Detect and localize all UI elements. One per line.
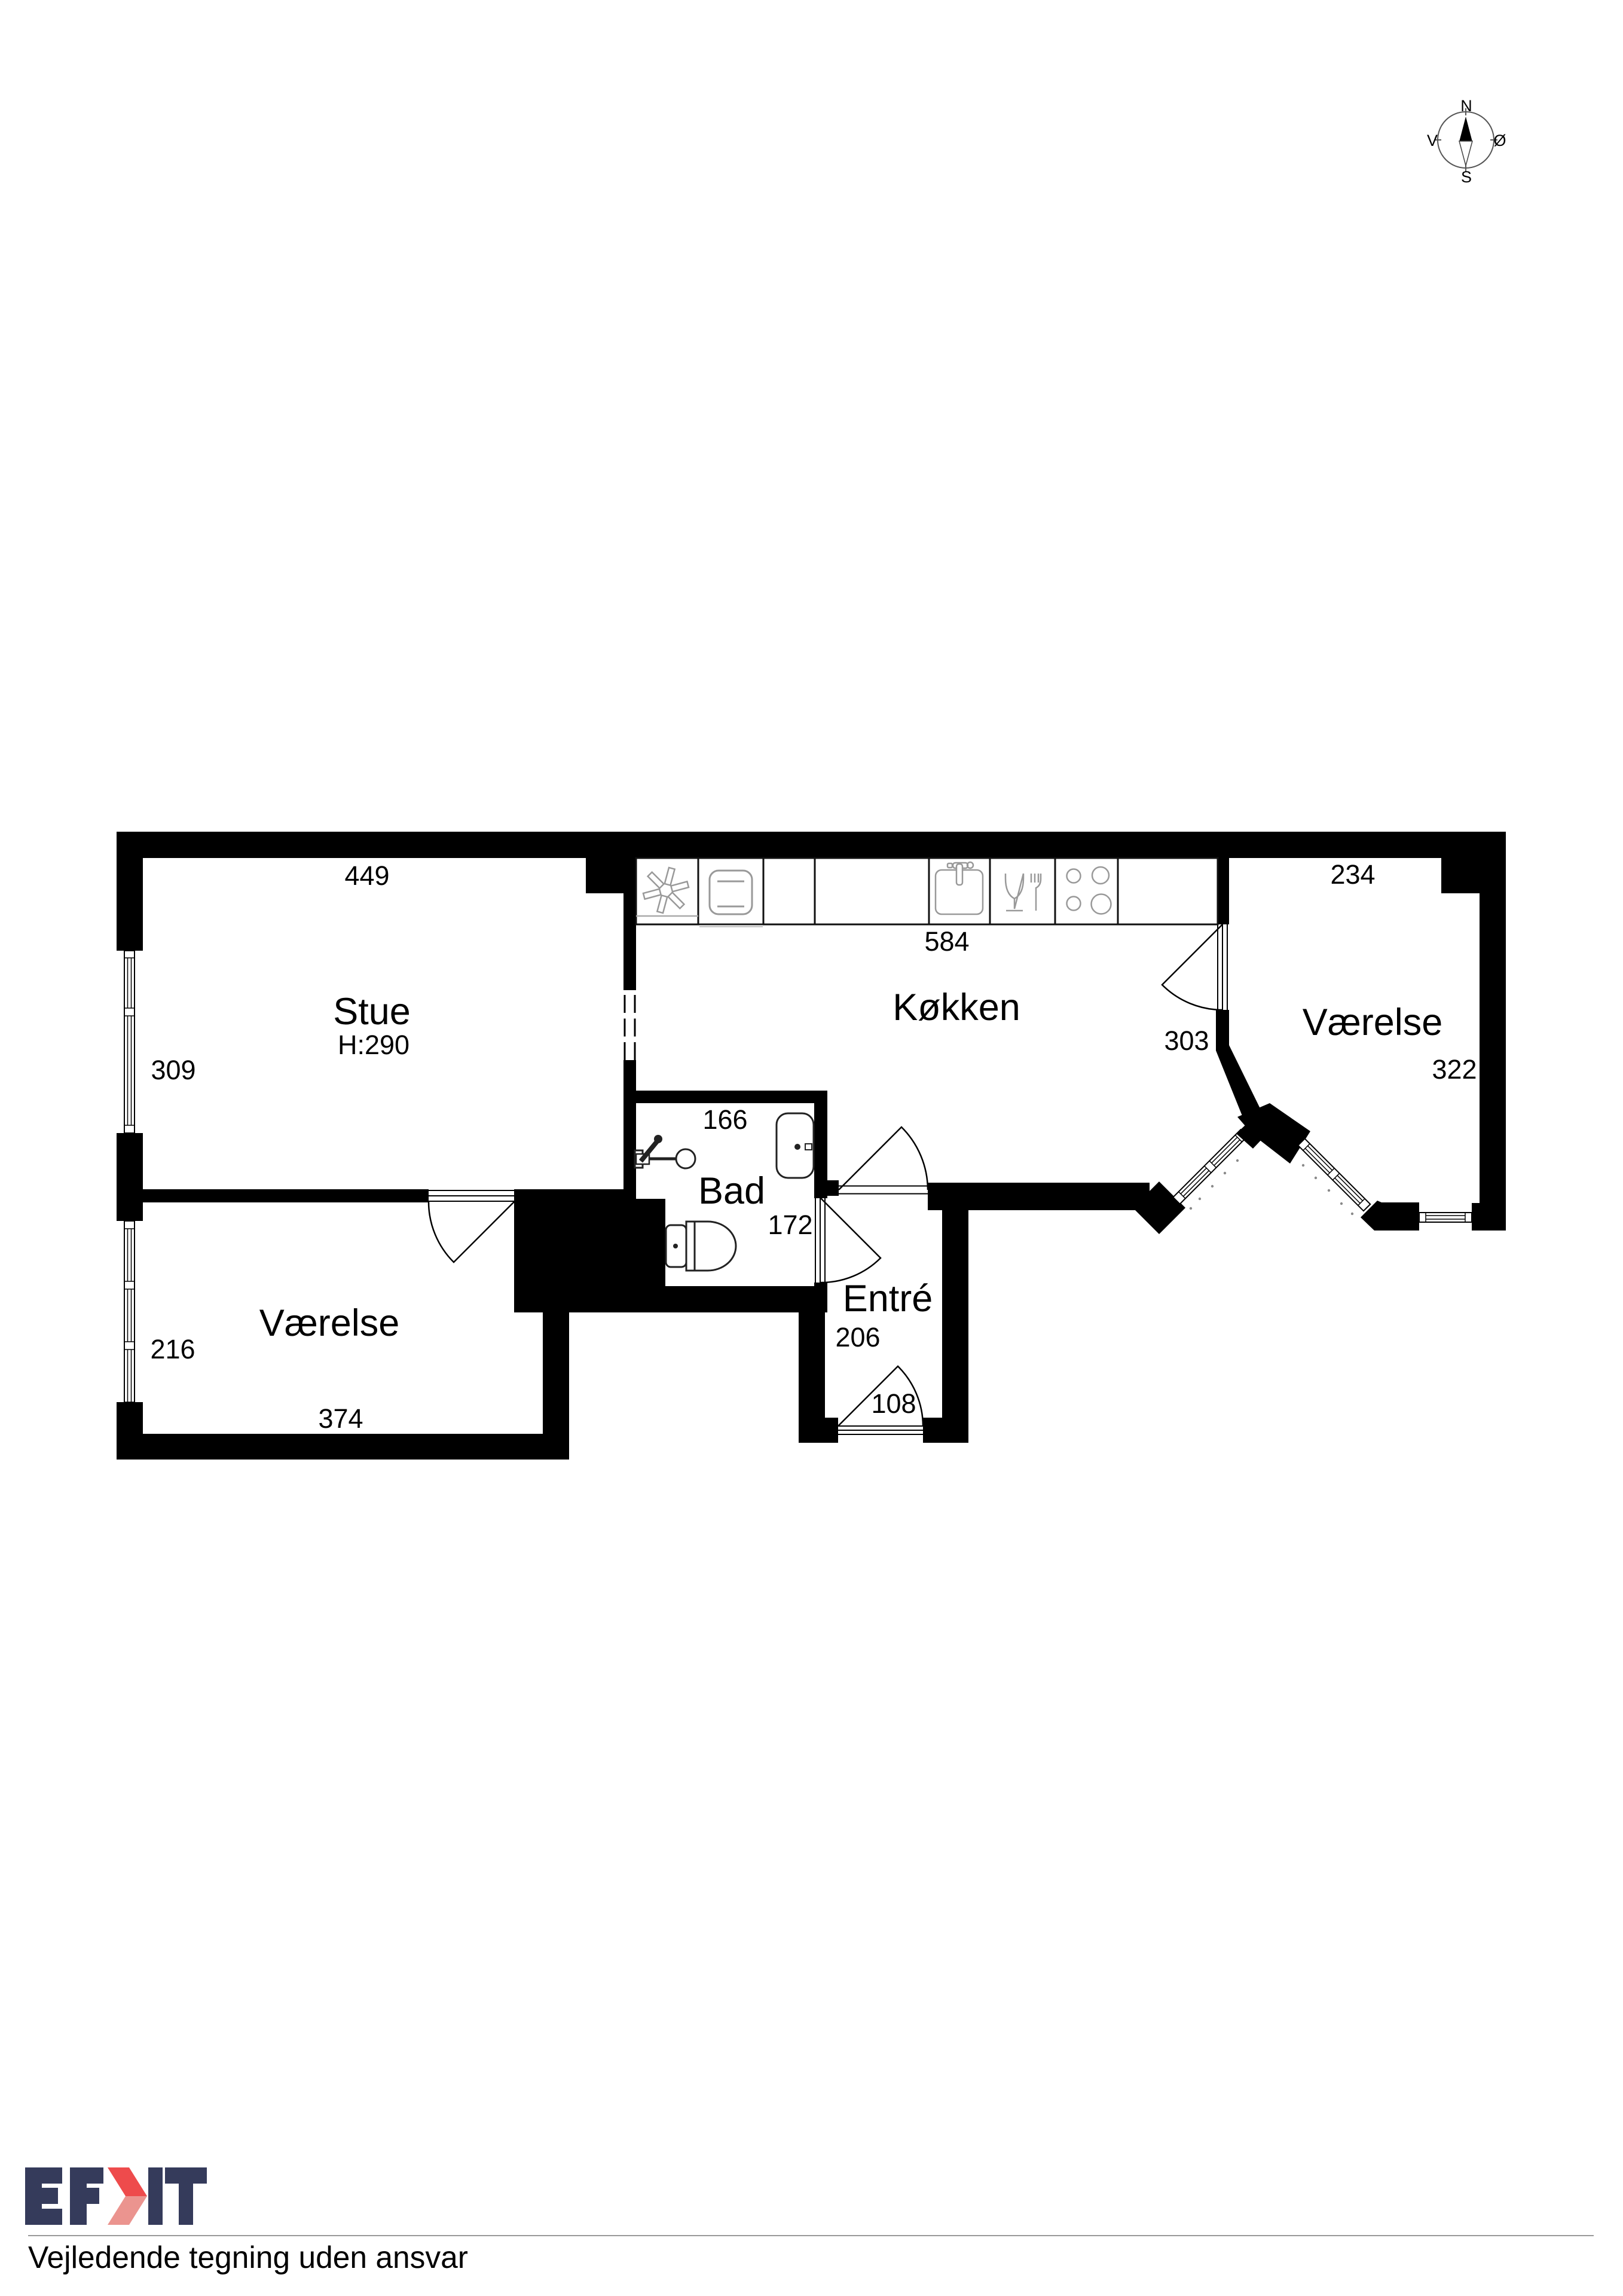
- svg-text:Ø: Ø: [1493, 132, 1506, 149]
- svg-text:Køkken: Køkken: [893, 987, 1020, 1028]
- svg-text:172: 172: [768, 1210, 812, 1240]
- svg-text:Værelse: Værelse: [1303, 1002, 1443, 1043]
- svg-text:Entré: Entré: [843, 1278, 933, 1320]
- svg-text:449: 449: [344, 860, 389, 891]
- svg-text:234: 234: [1330, 859, 1375, 890]
- svg-text:Bad: Bad: [698, 1170, 765, 1212]
- svg-text:108: 108: [871, 1388, 916, 1419]
- svg-text:166: 166: [702, 1104, 747, 1135]
- svg-text:374: 374: [318, 1403, 363, 1434]
- svg-text:216: 216: [150, 1334, 195, 1364]
- svg-text:303: 303: [1164, 1025, 1209, 1056]
- svg-text:V: V: [1427, 132, 1438, 149]
- svg-text:N: N: [1460, 97, 1472, 115]
- svg-text:322: 322: [1432, 1054, 1477, 1085]
- svg-text:Værelse: Værelse: [259, 1302, 400, 1344]
- svg-text:206: 206: [835, 1322, 880, 1352]
- svg-text:S: S: [1461, 168, 1472, 186]
- svg-text:H:290: H:290: [338, 1030, 409, 1060]
- svg-text:584: 584: [924, 926, 969, 957]
- svg-text:309: 309: [151, 1055, 195, 1085]
- svg-text:Stue: Stue: [333, 991, 411, 1033]
- svg-text:Vejledende tegning uden ansvar: Vejledende tegning uden ansvar: [28, 2240, 468, 2274]
